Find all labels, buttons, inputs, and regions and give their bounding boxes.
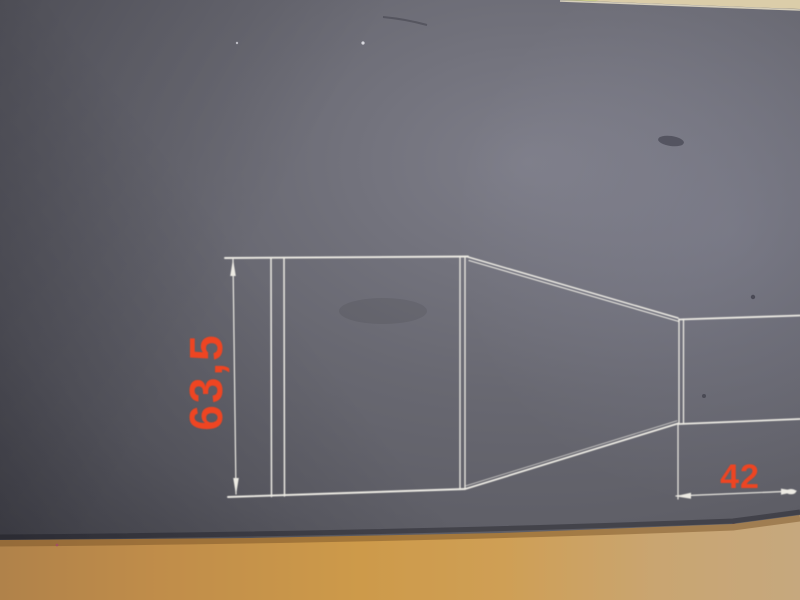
flange-line-inner [284, 258, 285, 496]
width-arrow-right-blob [786, 489, 796, 494]
white-speck [361, 41, 364, 44]
flange-line-outer [271, 259, 272, 497]
photo-of-technical-drawing: 63,5 42 [0, 0, 800, 600]
dark-dot-right [751, 295, 755, 299]
photo-canvas: 63,5 42 [0, 0, 800, 600]
sheet-lighting-and-marks [0, 0, 800, 600]
magenta-speck-on-wood [56, 544, 59, 547]
dark-dot-lower-right [702, 394, 706, 398]
white-speck-small [236, 42, 238, 44]
width-dimension-label: 42 [720, 458, 760, 496]
height-dimension-label: 63,5 [180, 333, 232, 431]
smudge-mark-center [339, 298, 427, 324]
